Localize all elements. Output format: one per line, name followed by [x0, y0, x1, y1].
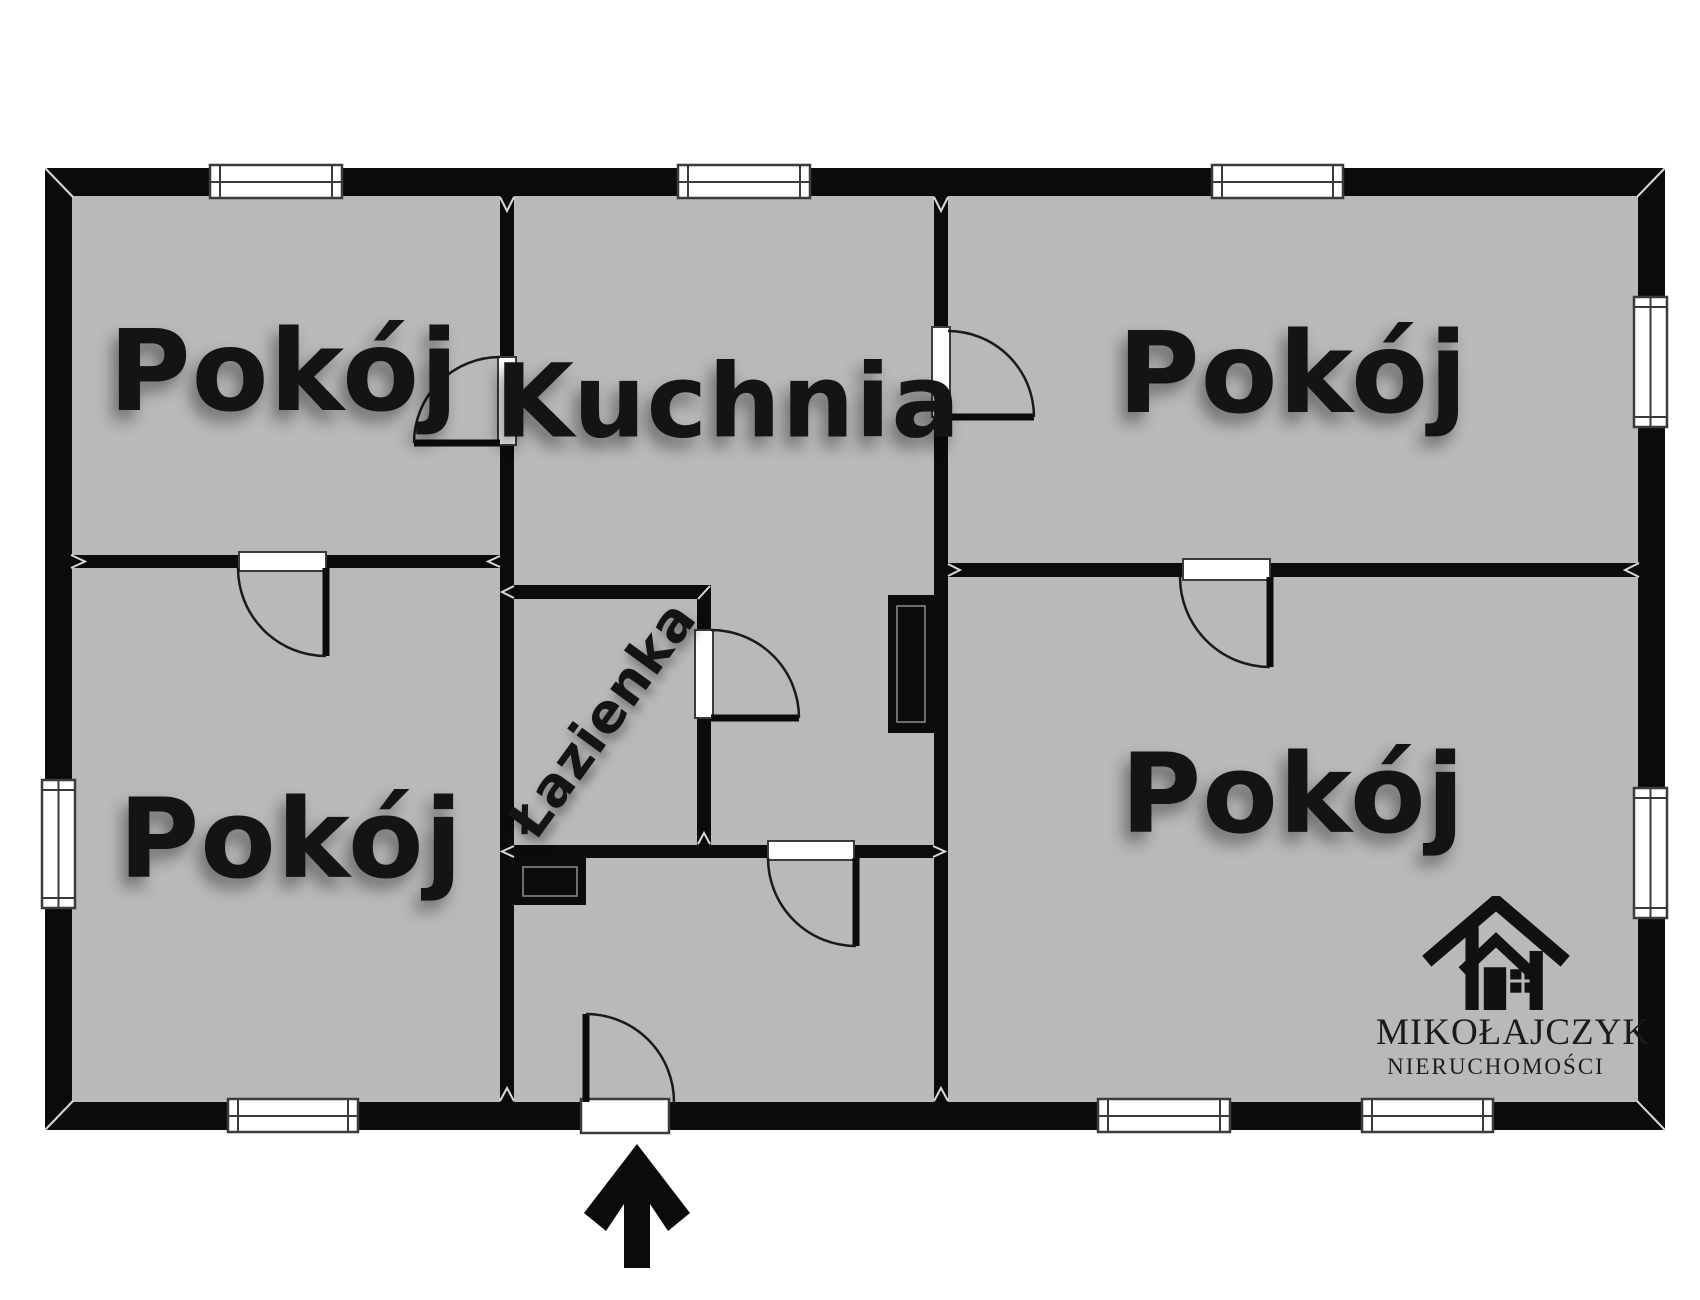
window: [228, 1099, 358, 1132]
company-name: MIKOŁAJCZYK: [1376, 1014, 1616, 1051]
window: [1634, 297, 1667, 427]
room-label-pokoj-top-right: Pokój: [1118, 309, 1469, 439]
company-logo: MIKOŁAJCZYK NIERUCHOMOŚCI: [1376, 896, 1616, 1080]
floor-plan: Pokój Kuchnia Pokój Pokój Łazienka Pokój…: [0, 0, 1700, 1300]
entrance-opening: [581, 1099, 669, 1133]
window: [42, 780, 75, 908]
window: [678, 165, 810, 198]
room-label-pokoj-bottom-left: Pokój: [119, 775, 464, 903]
house-icon: [1421, 896, 1571, 1010]
room-label-pokoj-top-left: Pokój: [109, 307, 460, 437]
floor-plan-drawing: [0, 0, 1700, 1300]
entrance-arrow-icon: [584, 1144, 690, 1268]
company-subtitle: NIERUCHOMOŚCI: [1376, 1054, 1616, 1080]
window: [1212, 165, 1343, 198]
window: [1362, 1099, 1493, 1132]
room-label-kuchnia: Kuchnia: [495, 343, 961, 462]
window: [1098, 1099, 1230, 1132]
window: [210, 165, 342, 198]
window: [1634, 788, 1667, 918]
room-label-pokoj-bottom-right: Pokój: [1121, 730, 1466, 858]
